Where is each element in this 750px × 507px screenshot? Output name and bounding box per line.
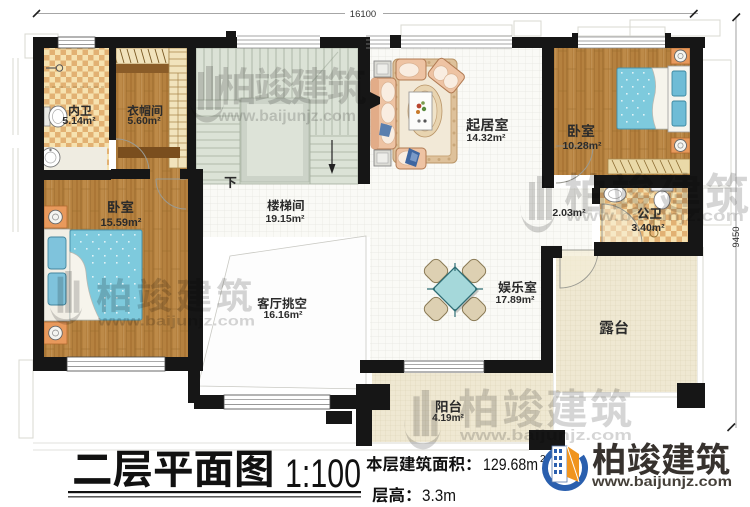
svg-text:17.89m²: 17.89m² (495, 294, 535, 306)
svg-text:www.baijunjz.com: www.baijunjz.com (591, 474, 732, 489)
svg-text:16.16m²: 16.16m² (263, 309, 303, 321)
svg-text:5.14m²: 5.14m² (62, 115, 96, 127)
svg-text:129.68m: 129.68m (483, 455, 538, 474)
svg-text:14.32m²: 14.32m² (466, 132, 506, 144)
svg-text:9450: 9450 (731, 226, 742, 247)
svg-text:15.59m²: 15.59m² (101, 217, 142, 229)
svg-text:4.19m²: 4.19m² (432, 413, 464, 424)
svg-text:3.3m: 3.3m (422, 486, 456, 505)
svg-text:3.40m²: 3.40m² (631, 222, 665, 234)
svg-text:5.60m²: 5.60m² (127, 115, 161, 127)
svg-text:www.baijunjz.com: www.baijunjz.com (97, 314, 255, 329)
svg-text:16100: 16100 (350, 9, 376, 20)
svg-text:www.baijunjz.com: www.baijunjz.com (459, 427, 632, 444)
svg-text:1:100: 1:100 (285, 452, 361, 496)
svg-text:19.15m²: 19.15m² (265, 213, 305, 225)
svg-text:10.28m²: 10.28m² (562, 140, 602, 152)
svg-text:www.baijunjz.com: www.baijunjz.com (217, 108, 356, 125)
svg-text:2.03m²: 2.03m² (552, 207, 586, 219)
